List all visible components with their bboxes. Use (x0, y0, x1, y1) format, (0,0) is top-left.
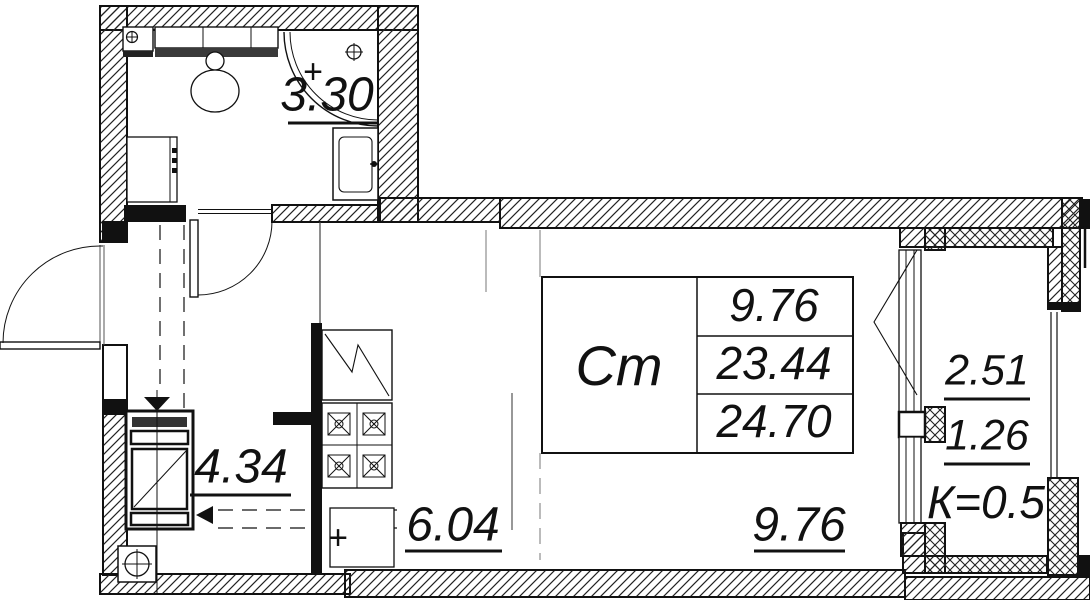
riser-arrow-left-icon (196, 506, 213, 524)
summary-total-area: 24.70 (715, 395, 832, 447)
entry-door-leaf (0, 342, 100, 349)
kitchen-area-label: 6.04 (406, 499, 499, 552)
entry-door-swing-arc (3, 246, 103, 343)
summary-apartment-area: 23.44 (715, 337, 831, 389)
wash-basin (333, 128, 379, 200)
bathroom-area-label: 3.30 (280, 69, 374, 122)
kitchen-plus-mark: + (328, 519, 348, 557)
balcony-area-counted-label: 1.26 (945, 411, 1029, 459)
apartment-type-label: Ст (575, 334, 662, 397)
bathroom-door (190, 210, 272, 298)
washing-machine (123, 27, 153, 57)
balcony-coefficient-label: К=0.5 (927, 476, 1045, 528)
hallway-area-label: 4.34 (194, 441, 287, 494)
toilet (191, 52, 239, 112)
floor-plan-canvas: 3.30 + 4.34 6.04 9.76 + Ст 9.76 23.44 24… (0, 0, 1090, 600)
bathroom-cabinet (127, 137, 177, 202)
kitchen-sink (322, 330, 392, 400)
entry-door (0, 245, 104, 349)
bathroom-door-swing-arc (198, 221, 272, 295)
bathroom-door-leaf (190, 220, 198, 297)
floor-drain (118, 546, 156, 582)
floor-plan-svg: 3.30 + 4.34 6.04 9.76 + Ст 9.76 23.44 24… (0, 0, 1090, 600)
living-area-label: 9.76 (752, 499, 846, 552)
balcony-area-full-label: 2.51 (944, 346, 1029, 394)
summary-living-area: 9.76 (729, 279, 819, 331)
stove (322, 403, 392, 488)
bathroom-plus-mark: + (303, 53, 323, 91)
